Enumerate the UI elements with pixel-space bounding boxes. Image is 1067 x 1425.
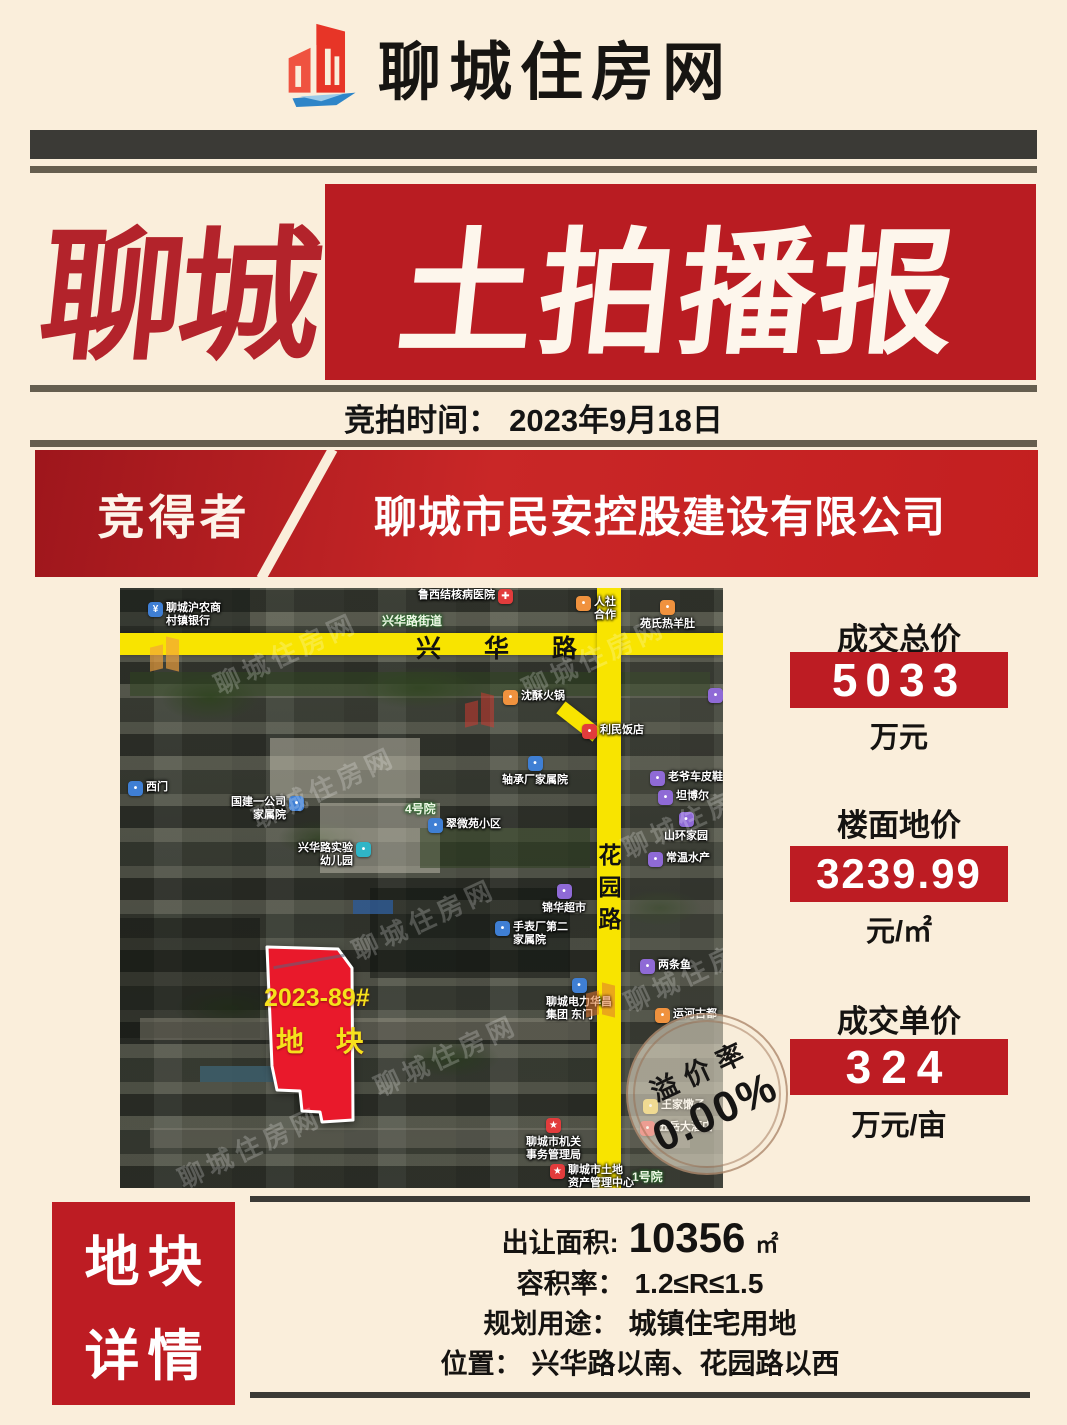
details-rule-top <box>250 1196 1030 1202</box>
map-poi: 鲁西结核病医院✚ <box>418 589 513 604</box>
map-poi: •利民饭店 <box>582 724 644 739</box>
site-title: 聊城住房网 <box>378 32 733 102</box>
detail-far-label: 容积率： <box>517 1262 625 1301</box>
detail-area-unit: ㎡ <box>755 1225 778 1259</box>
stat-unit-price-unit: 万元/亩 <box>790 1102 1008 1144</box>
auction-time-row: 竞拍时间： 2023年9月18日 <box>0 396 1067 438</box>
map-texture-block <box>420 828 590 868</box>
detail-location-label: 位置： <box>440 1342 521 1381</box>
map-poi: •常温水产 <box>648 852 710 867</box>
logo-shape <box>586 990 599 1017</box>
detail-area-label: 出让面积: <box>502 1221 619 1260</box>
thin-rule-2 <box>30 385 1037 392</box>
stat-floor-price-value: 3239.99 <box>790 846 1008 902</box>
road-char: 园 <box>599 876 622 899</box>
logo-shape <box>465 700 478 727</box>
map-poi-label: 鲁西结核病医院 <box>418 589 495 602</box>
hero-broadcast-text: 土拍播报 <box>315 184 1047 380</box>
map-watermark-logo <box>465 694 494 726</box>
detail-row-area: 出让面积: 10356 ㎡ <box>250 1214 1030 1262</box>
map-poi-label: 西门 <box>146 781 168 794</box>
map-poi-label: 聊城沪农商村镇银行 <box>166 602 221 628</box>
logo-shape <box>150 644 163 671</box>
map-poi-label: 兴华路实验幼儿园 <box>298 842 353 868</box>
map-poi: ★聊城市机关事务管理局 <box>526 1118 581 1162</box>
map-poi-icon: • <box>572 978 587 993</box>
stamp-content: 溢价率 0.00% <box>628 1025 786 1162</box>
map-area-label: 4号院 <box>405 800 436 817</box>
details-rule-bottom <box>250 1392 1030 1398</box>
thin-rule-3 <box>30 440 1037 447</box>
map-poi-label: 利民饭店 <box>600 724 644 737</box>
top-dark-bar <box>30 130 1037 159</box>
map-poi-icon: • <box>658 790 673 805</box>
map-poi-icon: • <box>503 690 518 705</box>
detail-usage-label: 规划用途： <box>483 1302 618 1341</box>
map-poi: •锦华超市 <box>542 884 586 915</box>
map-poi-label: 翠微苑小区 <box>446 818 501 831</box>
stat-unit-price-label: 成交单价 <box>790 996 1008 1041</box>
map-poi-icon: • <box>576 596 591 611</box>
map-poi-icon: ★ <box>550 1164 565 1179</box>
map-poi-icon: • <box>428 818 443 833</box>
details-rows: 出让面积: 10356 ㎡ 容积率： 1.2≤R≤1.5 规划用途： 城镇住宅用… <box>250 1214 1030 1382</box>
map-poi: ★聊城市土地资产管理中心 <box>550 1164 634 1188</box>
map-poi-icon: • <box>356 842 371 857</box>
map-area-label: 1号院 <box>632 1168 663 1185</box>
detail-usage-value: 城镇住宅用地 <box>628 1302 796 1342</box>
map-poi: •手表厂第二家属院 <box>495 921 568 947</box>
logo-shape <box>602 982 615 1017</box>
map-poi-icon: ★ <box>546 1118 561 1133</box>
map-poi-label: 手表厂第二家属院 <box>513 921 568 947</box>
map-poi-icon: • <box>128 781 143 796</box>
map-poi: •魔方城 <box>708 688 723 703</box>
map-poi: •人社合作 <box>576 596 616 622</box>
stat-floor-price-label: 楼面地价 <box>790 800 1008 845</box>
map-poi-icon: • <box>557 884 572 899</box>
road-char: 花 <box>599 844 622 867</box>
detail-location-value: 兴华路以南、花园路以西 <box>531 1342 839 1382</box>
map-poi: ¥聊城沪农商村镇银行 <box>148 602 221 628</box>
map-poi-label: 老爷车皮鞋专安 <box>668 771 723 784</box>
detail-area-value: 10356 <box>629 1214 746 1262</box>
details-title-block: 地块 详情 <box>52 1202 235 1405</box>
winner-label: 竞得者 <box>58 450 290 577</box>
map-poi: •翠微苑小区 <box>428 818 501 833</box>
auction-time-label: 竞拍时间： <box>344 395 499 440</box>
details-title-line2: 详情 <box>76 1311 210 1391</box>
road-char: 路 <box>599 908 622 931</box>
map-poi-icon: • <box>660 600 675 615</box>
map-poi-label: 轴承厂家属院 <box>502 774 568 787</box>
map-poi-label: 人社合作 <box>594 596 616 622</box>
detail-row-usage: 规划用途： 城镇住宅用地 <box>250 1302 1030 1342</box>
map-poi-label: 常温水产 <box>666 852 710 865</box>
map-area-label: 兴华路街道 <box>382 612 442 629</box>
map-poi-label: 聊城市机关事务管理局 <box>526 1136 581 1162</box>
map-poi-icon: • <box>582 724 597 739</box>
detail-row-far: 容积率： 1.2≤R≤1.5 <box>250 1262 1030 1301</box>
logo-shape <box>166 636 179 671</box>
map-poi-icon: ¥ <box>148 602 163 617</box>
map-poi: •轴承厂家属院 <box>502 756 568 787</box>
detail-row-location: 位置： 兴华路以南、花园路以西 <box>250 1342 1030 1382</box>
map-poi-icon: • <box>655 1008 670 1023</box>
map-poi: 兴华路实验幼儿园• <box>298 842 371 868</box>
map-poi: •老爷车皮鞋专安 <box>650 771 723 786</box>
stat-unit-price-value: 324 <box>790 1039 1008 1095</box>
thin-rule-1 <box>30 166 1037 173</box>
stat-floor-price-unit: 元/㎡ <box>790 908 1008 950</box>
stat-total-price-unit: 万元 <box>790 714 1008 756</box>
detail-far-value: 1.2≤R≤1.5 <box>635 1268 764 1300</box>
details-title-line1: 地块 <box>76 1217 210 1297</box>
map-poi-icon: • <box>650 771 665 786</box>
map-poi-icon: ✚ <box>498 589 513 604</box>
map-watermark-logo <box>150 638 179 670</box>
parcel-number: 2023-89# <box>264 984 368 1013</box>
map-poi-icon: • <box>528 756 543 771</box>
logo-shape <box>481 692 494 727</box>
map-poi-label: 锦华超市 <box>542 902 586 915</box>
hero-city-text: 聊城 <box>25 198 335 370</box>
map-watermark-logo <box>586 984 615 1016</box>
map-poi-icon: • <box>708 688 723 703</box>
stat-total-price-value: 5033 <box>790 652 1008 708</box>
winner-company-name: 聊城市民安控股建设有限公司 <box>340 450 980 577</box>
map-texture-block <box>353 900 393 914</box>
map-poi-icon: • <box>495 921 510 936</box>
housing-network-logo-icon <box>281 14 367 114</box>
map-poi: •西门 <box>128 781 168 796</box>
poster-page: 聊城住房网 聊城 土拍播报 竞拍时间： 2023年9月18日 竞得者 聊城市民安… <box>0 0 1067 1425</box>
premium-rate-stamp: 溢价率 0.00% <box>626 1013 788 1175</box>
auction-time-date: 2023年9月18日 <box>509 395 723 440</box>
map-poi-label: 聊城市土地资产管理中心 <box>568 1164 634 1188</box>
parcel-name: 地 块 <box>264 1020 368 1060</box>
road-label-huayuan: 花 园 路 <box>598 844 622 931</box>
